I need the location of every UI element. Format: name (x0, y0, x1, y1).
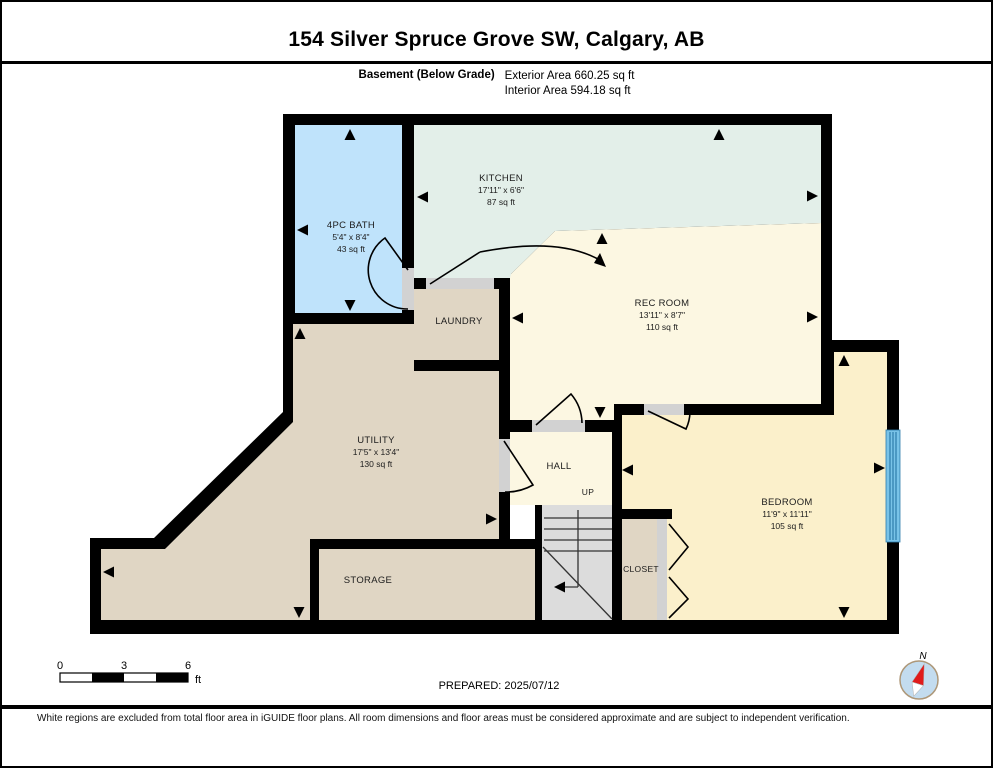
scale-label-3: 3 (121, 660, 127, 672)
room-dims-utility: 17'5" x 13'4" (353, 447, 400, 457)
footer-divider (2, 705, 991, 709)
disclaimer-text: White regions are excluded from total fl… (37, 713, 967, 724)
room-label-laundry: LAUNDRY (435, 316, 483, 327)
room-bath-area (295, 125, 402, 313)
scale-unit: ft (195, 674, 201, 686)
scale-label-6: 6 (185, 660, 191, 672)
prepared-date: PREPARED: 2025/07/12 (439, 680, 560, 692)
room-label-rec: REC ROOM (635, 298, 690, 309)
room-label-utility: UTILITY (357, 435, 395, 446)
compass-icon: N (900, 651, 938, 699)
scale-bar: 0 3 6 ft (57, 660, 201, 686)
room-label-hall: HALL (547, 461, 572, 472)
bedroom-window (886, 430, 900, 542)
room-label-bedroom: BEDROOM (761, 497, 812, 508)
room-area-utility: 130 sq ft (360, 459, 393, 469)
room-dims-rec: 13'11" x 8'7" (639, 310, 685, 320)
stairs-up-label: UP (582, 487, 594, 497)
room-label-closet: CLOSET (623, 564, 659, 574)
stairs-area (542, 505, 612, 620)
floor-plan-canvas: 4PC BATH 5'4" x 8'4" 43 sq ft KITCHEN 17… (2, 2, 993, 768)
floorplan-page: 154 Silver Spruce Grove SW, Calgary, AB … (0, 0, 993, 768)
room-area-bedroom: 105 sq ft (771, 521, 804, 531)
room-area-kitchen: 87 sq ft (487, 197, 516, 207)
room-label-bath: 4PC BATH (327, 220, 375, 231)
room-dims-kitchen: 17'11" x 6'6" (478, 185, 524, 195)
excluded-void (510, 505, 535, 539)
room-dims-bedroom: 11'9" x 11'11" (762, 509, 811, 519)
room-label-kitchen: KITCHEN (479, 173, 523, 184)
room-dims-bath: 5'4" x 8'4" (332, 232, 369, 242)
room-area-bath: 43 sq ft (337, 244, 366, 254)
room-label-storage: STORAGE (344, 575, 392, 586)
room-area-rec: 110 sq ft (646, 322, 679, 332)
scale-label-0: 0 (57, 660, 63, 672)
